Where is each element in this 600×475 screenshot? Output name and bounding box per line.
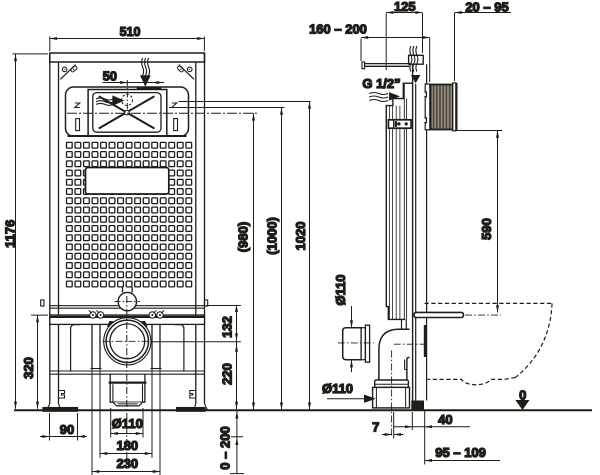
svg-text:1020: 1020 — [293, 222, 308, 251]
svg-text:320: 320 — [21, 357, 36, 379]
svg-text:180: 180 — [116, 438, 138, 453]
svg-text:90: 90 — [60, 422, 74, 437]
svg-text:125: 125 — [394, 0, 416, 14]
svg-text:(1000): (1000) — [264, 217, 279, 255]
svg-text:132: 132 — [220, 316, 235, 338]
svg-text:G 1/2”: G 1/2” — [362, 76, 400, 91]
svg-text:7: 7 — [372, 419, 379, 434]
svg-text:40: 40 — [438, 412, 452, 427]
svg-text:160 – 200: 160 – 200 — [309, 22, 367, 37]
svg-text:0: 0 — [519, 388, 526, 403]
svg-text:(980): (980) — [236, 222, 251, 252]
svg-text:Ø110: Ø110 — [322, 381, 353, 396]
svg-text:20 – 95: 20 – 95 — [465, 0, 508, 15]
svg-text:0 – 200: 0 – 200 — [217, 426, 232, 469]
svg-text:510: 510 — [120, 25, 141, 39]
svg-text:Ø110: Ø110 — [112, 416, 143, 431]
svg-text:50: 50 — [103, 68, 117, 83]
svg-text:220: 220 — [220, 363, 235, 385]
svg-text:590: 590 — [479, 218, 494, 240]
svg-text:Ø110: Ø110 — [333, 274, 348, 305]
svg-text:1176: 1176 — [3, 220, 18, 248]
svg-text:95 – 109: 95 – 109 — [435, 445, 486, 460]
svg-text:230: 230 — [116, 456, 138, 471]
